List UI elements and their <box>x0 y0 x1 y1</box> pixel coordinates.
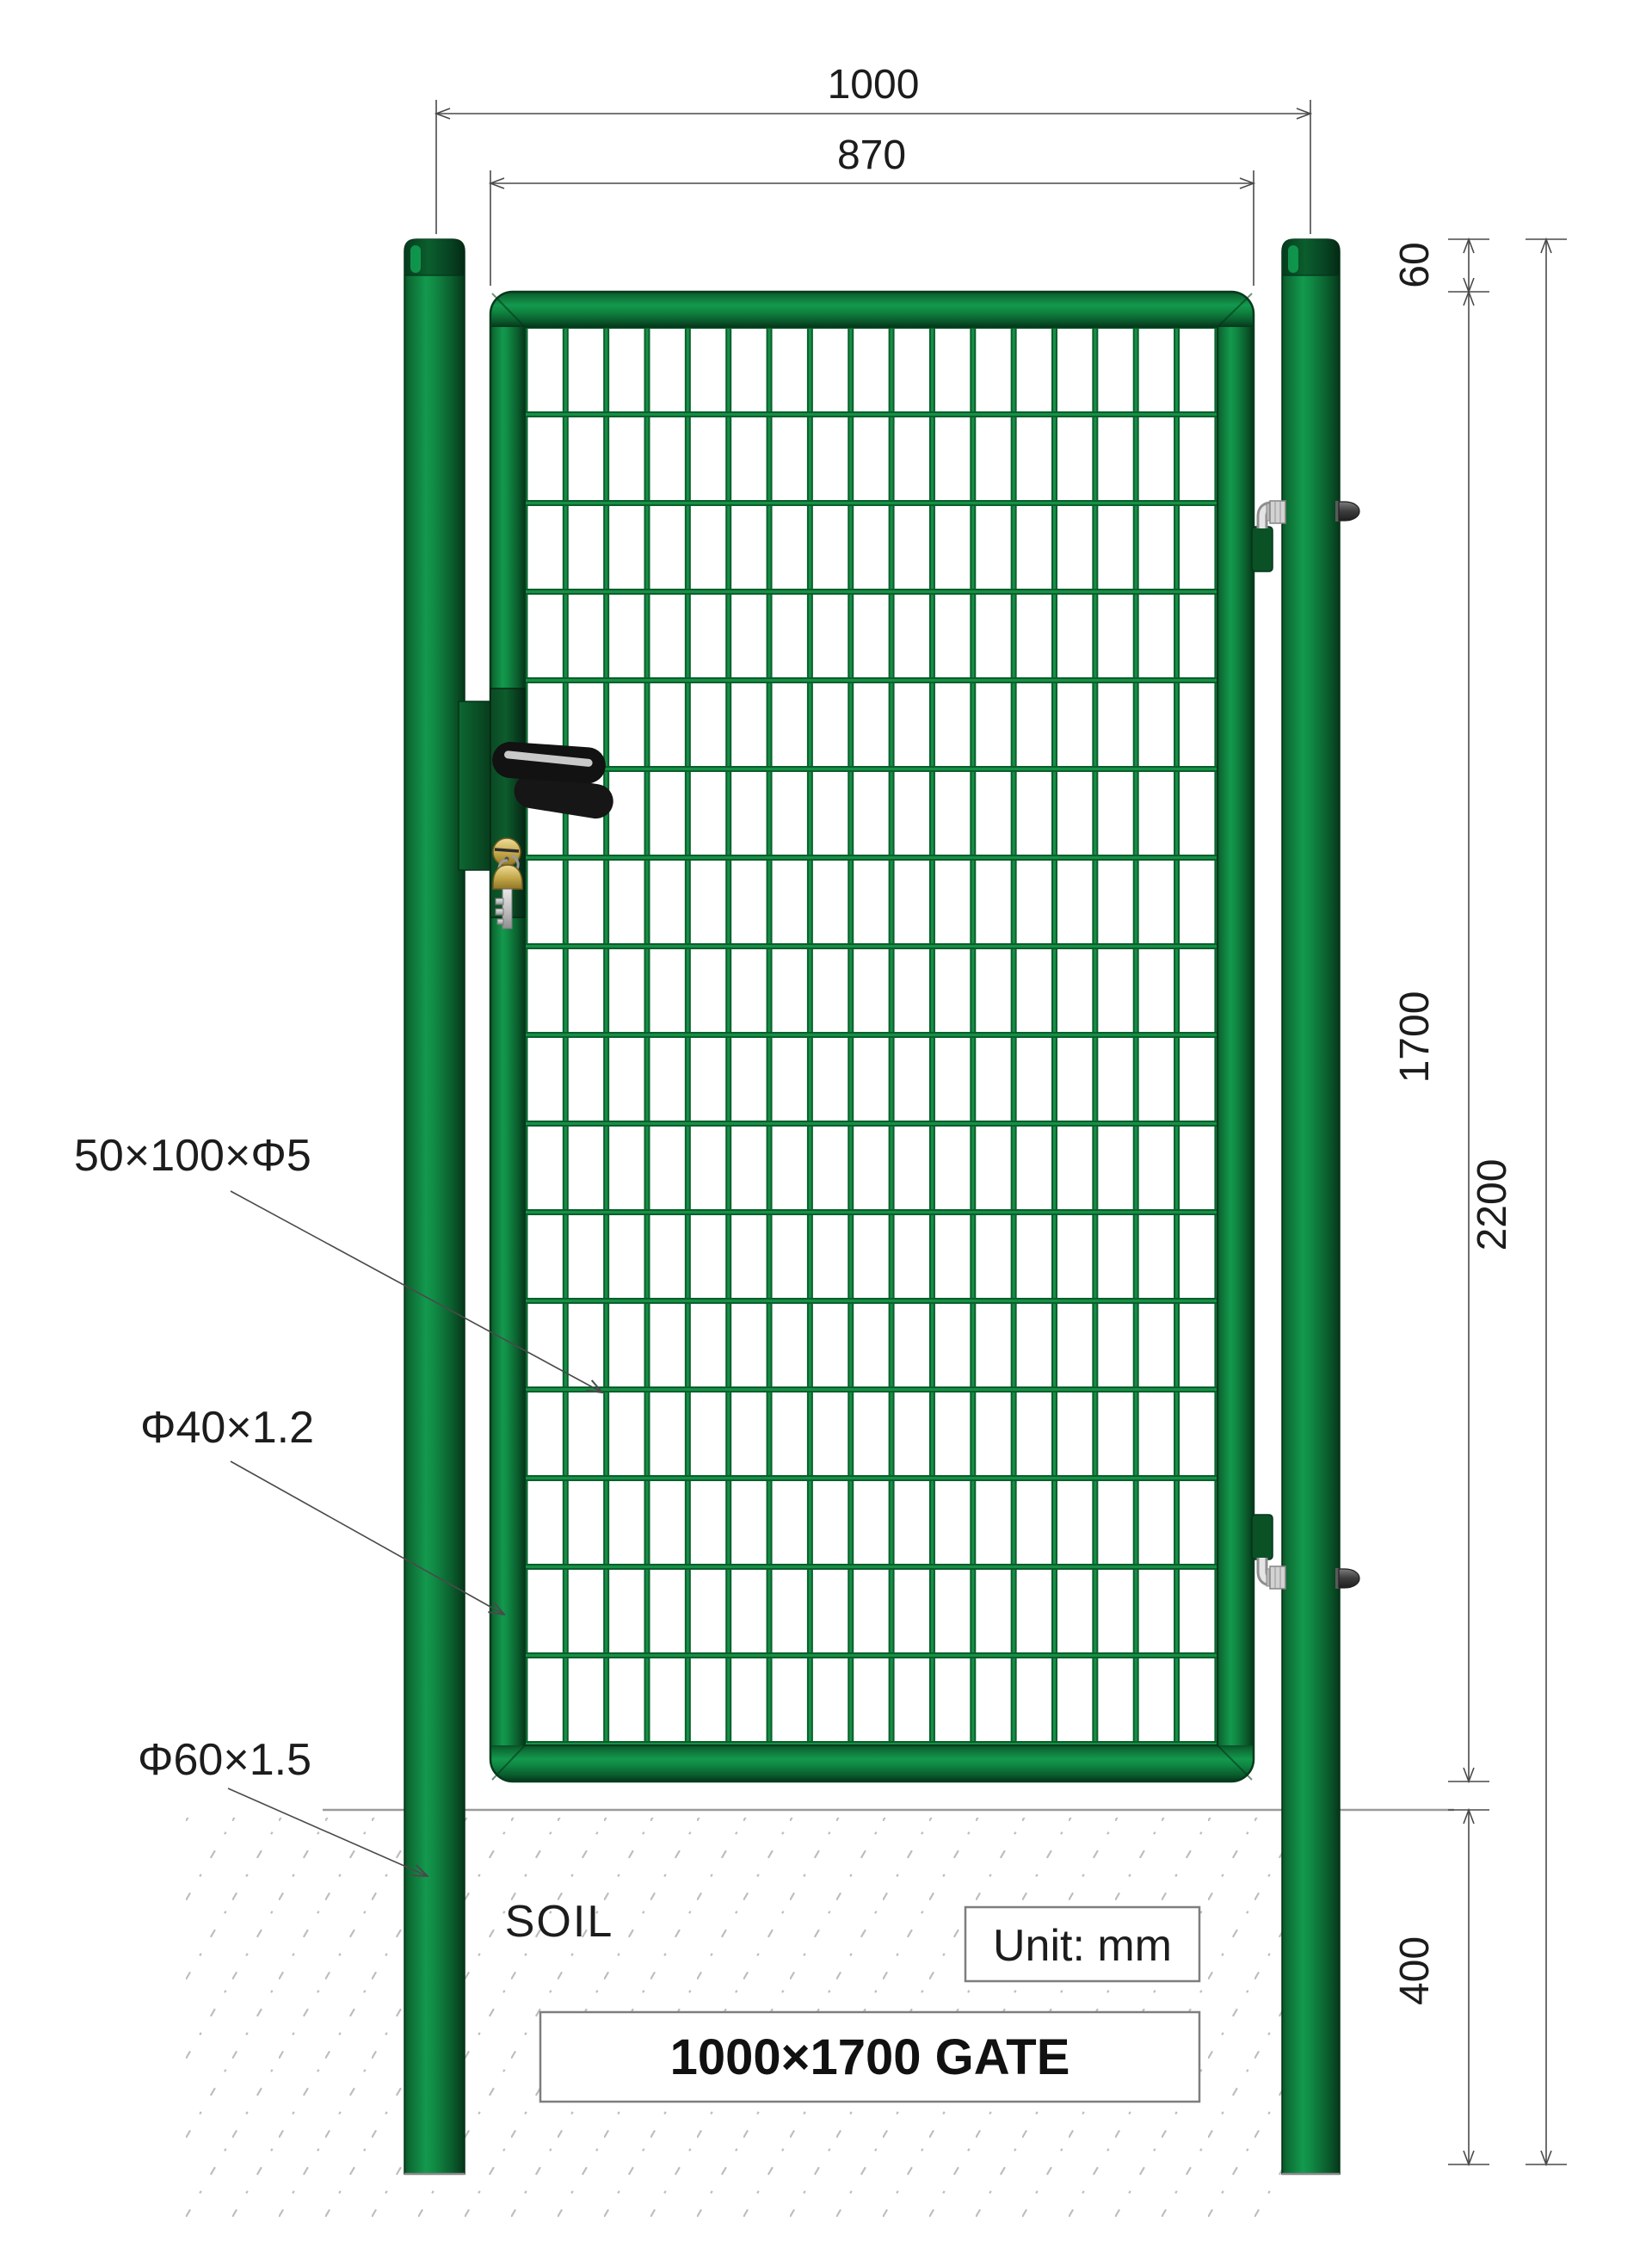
dim-post-height: 2200 <box>1470 1159 1515 1251</box>
dim-gate-height: 1700 <box>1392 991 1438 1084</box>
hinge-top-nut <box>1270 501 1285 523</box>
left-post-cap-highlight <box>410 245 421 273</box>
unit-label: Unit: mm <box>993 1921 1172 1971</box>
gate-drawing-page: SOIL Unit: mm 1000×1700 GATE <box>0 0 1652 2260</box>
gate-technical-drawing: SOIL Unit: mm 1000×1700 GATE <box>0 0 1652 2260</box>
key-shaft <box>502 889 512 929</box>
lock-catch-plate <box>459 701 493 870</box>
key-bow <box>493 865 522 889</box>
hinge-bottom-bolt-knob <box>1339 1569 1359 1588</box>
hinge-top-sleeve <box>1252 527 1273 571</box>
drawing-title: 1000×1700 GATE <box>670 2029 1070 2085</box>
hinge-bottom-sleeve <box>1252 1515 1273 1559</box>
dim-inner-width: 870 <box>837 133 906 178</box>
gate-mesh <box>525 327 1217 1745</box>
dim-buried-depth: 400 <box>1392 1936 1438 2005</box>
hinge-top-bolt-knob <box>1339 502 1359 521</box>
dim-top-offset: 60 <box>1392 242 1438 287</box>
title-box: 1000×1700 GATE <box>540 2012 1199 2102</box>
mesh-spec-label: 50×100×Φ5 <box>74 1131 311 1181</box>
unit-box: Unit: mm <box>965 1907 1199 1981</box>
dim-overall-width: 1000 <box>828 62 920 108</box>
left-post <box>404 239 465 2174</box>
frame-spec-label: Φ40×1.2 <box>140 1403 314 1453</box>
right-post-cap-highlight <box>1288 245 1298 273</box>
soil-label: SOIL <box>505 1897 614 1947</box>
post-spec-label: Φ60×1.5 <box>138 1735 311 1785</box>
right-post <box>1282 239 1340 2174</box>
hinge-bottom-nut <box>1270 1566 1285 1589</box>
